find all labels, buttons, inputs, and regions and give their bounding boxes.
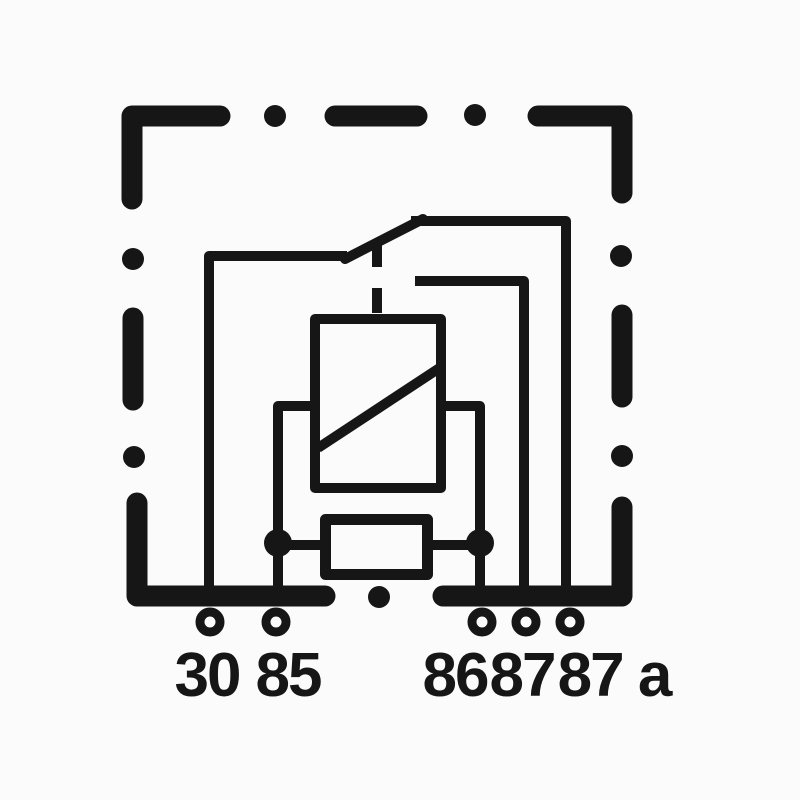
terminal-pin-86 — [472, 612, 492, 632]
terminal-label-85: 85 — [256, 641, 321, 710]
border-dot-top-right — [464, 104, 486, 126]
border-dot-bottom-middle — [368, 586, 390, 608]
terminal-label-87a: 87 a — [558, 641, 673, 710]
coil-diagonal-stroke — [318, 367, 441, 448]
terminal-label-86: 86 — [423, 641, 488, 710]
relay-circuit-diagram: 30 85 86 87 87 a — [0, 0, 800, 800]
terminal-pin-30 — [200, 612, 220, 632]
resistor-symbol — [326, 520, 428, 575]
border-top-right-corner — [538, 116, 622, 193]
border-dot-left-lower — [123, 446, 145, 468]
junction-dot-left — [264, 529, 292, 557]
relay-schematic-figure: 30 85 86 87 87 a — [0, 0, 800, 800]
terminal-pins — [200, 612, 580, 632]
junction-dot-right — [466, 529, 494, 557]
terminal-label-30: 30 — [175, 641, 240, 710]
terminal-pin-87a — [560, 612, 580, 632]
terminal-pin-87 — [516, 612, 536, 632]
border-top-left-corner — [132, 116, 220, 199]
border-dot-left-upper — [122, 248, 144, 270]
border-dot-right-upper — [610, 245, 632, 267]
border-dot-top-left — [264, 105, 286, 127]
border-dots — [122, 104, 633, 608]
circuit-conductors — [209, 219, 566, 598]
terminal-labels: 30 85 86 87 87 a — [175, 641, 673, 710]
terminal-pin-85 — [266, 612, 286, 632]
terminal-label-87: 87 — [490, 641, 555, 710]
border-dot-right-lower — [611, 445, 633, 467]
